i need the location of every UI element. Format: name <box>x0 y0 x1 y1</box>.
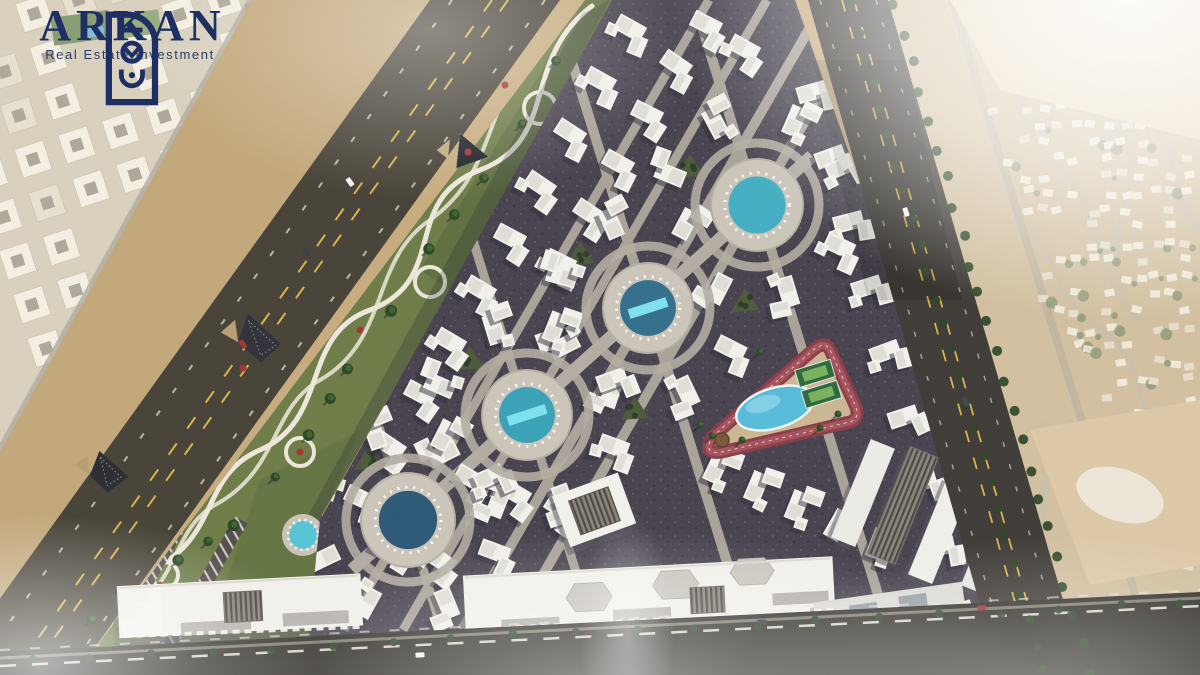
film-grain <box>0 0 1200 675</box>
page: ARKAN Real Estate Investment <box>0 0 1200 675</box>
masterplan-aerial-rendering <box>0 0 1200 675</box>
brand-logo: ARKAN Real Estate Investment <box>30 4 230 62</box>
brand-tagline: Real Estate Investment <box>30 47 230 62</box>
